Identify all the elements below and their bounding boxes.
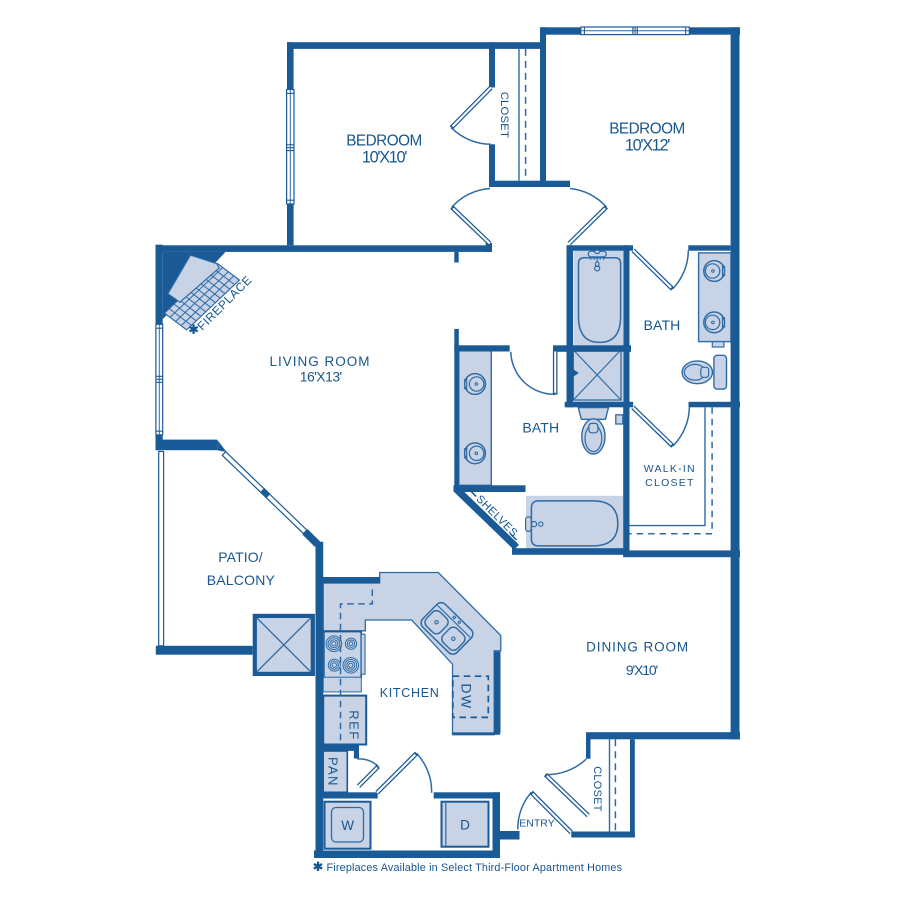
svg-text:PATIO/: PATIO/ [218, 549, 262, 565]
svg-text:Fireplaces Available in Select: Fireplaces Available in Select Third-Flo… [327, 862, 623, 874]
svg-text:16'X13': 16'X13' [300, 369, 342, 385]
svg-text:10'X10': 10'X10' [362, 148, 407, 166]
svg-text:BALCONY: BALCONY [207, 572, 276, 588]
svg-text:CLOSET: CLOSET [645, 477, 695, 489]
svg-text:WALK-IN: WALK-IN [644, 463, 696, 475]
svg-text:BEDROOM: BEDROOM [609, 121, 685, 138]
svg-text:CLOSET: CLOSET [498, 92, 510, 138]
svg-text:BATH: BATH [644, 317, 681, 333]
svg-text:BATH: BATH [522, 419, 559, 435]
svg-text:REF: REF [347, 710, 362, 741]
svg-text:10'X12': 10'X12' [625, 137, 670, 155]
svg-text:W: W [341, 818, 354, 833]
svg-text:9'X10': 9'X10' [626, 662, 658, 678]
svg-text:DW: DW [459, 683, 475, 709]
svg-text:LIVING ROOM: LIVING ROOM [269, 354, 370, 369]
svg-text:CLOSET: CLOSET [591, 766, 603, 812]
svg-text:BEDROOM: BEDROOM [346, 132, 422, 149]
svg-text:DINING ROOM: DINING ROOM [586, 640, 689, 655]
svg-text:D: D [460, 818, 470, 833]
svg-text:PAN: PAN [326, 757, 341, 787]
svg-text:ENTRY: ENTRY [519, 818, 554, 830]
svg-text:KITCHEN: KITCHEN [380, 686, 440, 700]
